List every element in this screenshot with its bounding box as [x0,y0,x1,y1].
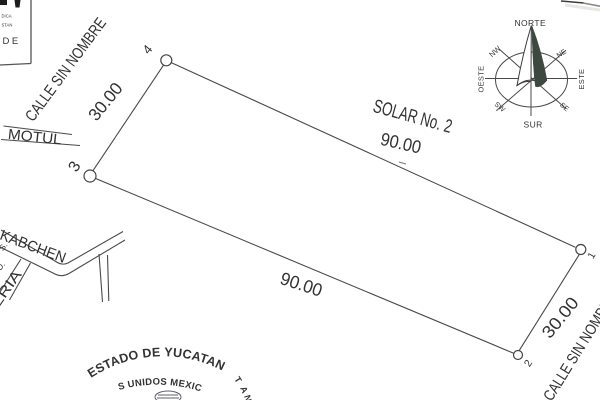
svg-text:STAN: STAN [2,23,13,28]
svg-text:SUR: SUR [524,120,543,130]
svg-text:ESTE: ESTE [577,69,586,90]
svg-text:NORTE: NORTE [515,18,547,28]
svg-text:DICA: DICA [2,14,12,19]
svg-text:OESTE: OESTE [477,66,486,93]
svg-text:DE: DE [3,36,21,47]
